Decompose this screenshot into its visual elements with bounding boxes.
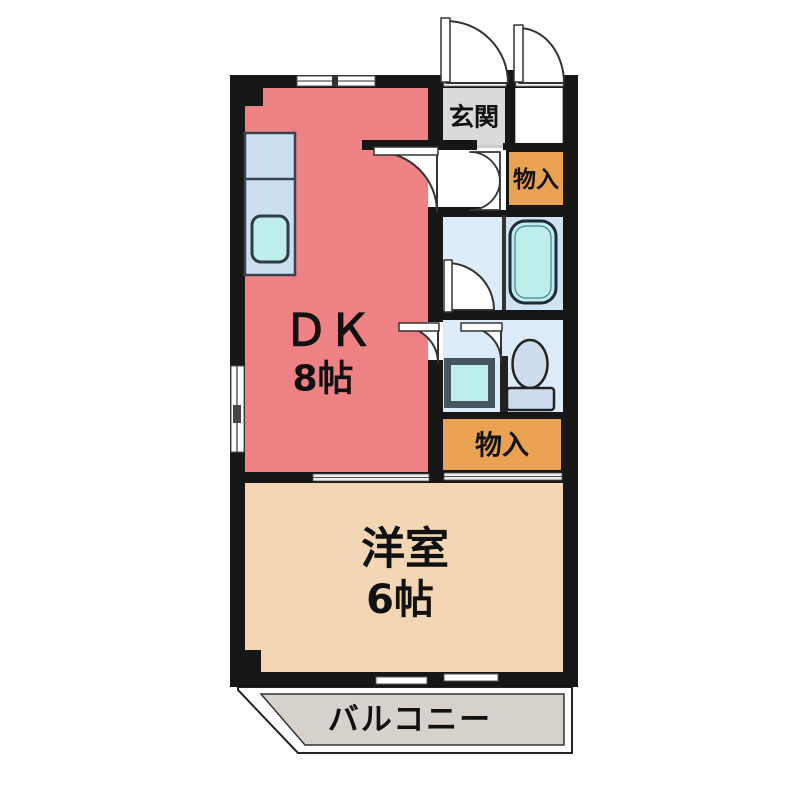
floor-plan-image: ＤＫ 8帖 洋室 6帖 玄関 物入 物入 バルコニー [0, 0, 800, 800]
label-western-room: 洋室 [361, 524, 449, 575]
label-western-size: 6帖 [366, 577, 434, 623]
bathroom-door-leaf [444, 260, 452, 312]
wall-western-corner-block [245, 650, 261, 674]
window-left-tick [233, 405, 241, 423]
wall-dk-hall-upper [428, 88, 443, 142]
entrance-closet-floor [515, 85, 563, 145]
entrance-door-leaf [441, 18, 450, 82]
floor-plan-svg: ＤＫ 8帖 洋室 6帖 玄関 物入 物入 バルコニー [0, 0, 800, 800]
dk-hall-door-leaf [374, 147, 438, 155]
label-dk-size: 8帖 [292, 359, 353, 400]
bathtub [510, 221, 556, 303]
wash-basin [451, 365, 488, 401]
wall-entrance-closet-sep [505, 85, 515, 145]
window-top-tick [332, 76, 338, 86]
kitchen-sink [252, 216, 288, 262]
toilet-bowl [513, 340, 548, 388]
wall-dk-bath-mid [428, 215, 443, 322]
toilet-door-leaf [461, 323, 502, 331]
window-bottom-left-leaf [376, 677, 427, 684]
toilet-tank [507, 388, 554, 410]
closet-door-arc [519, 28, 564, 83]
label-storage-middle: 物入 [475, 431, 529, 462]
label-storage-top: 物入 [513, 166, 559, 193]
wall-tub-partition [502, 215, 506, 310]
closet-door-leaf [514, 25, 523, 82]
dk-washroom-door-leaf [399, 323, 439, 331]
window-bottom-right-leaf [444, 674, 498, 681]
label-entrance: 玄関 [449, 103, 499, 132]
wall-dk-corner-notch [245, 88, 263, 106]
entrance-door-arc [446, 21, 508, 83]
label-balcony: バルコニー [328, 702, 492, 738]
wall-right [563, 75, 578, 687]
wall-above-storage-middle [428, 412, 565, 418]
wall-above-storage-top [503, 143, 567, 152]
label-dk: ＤＫ [284, 306, 372, 357]
